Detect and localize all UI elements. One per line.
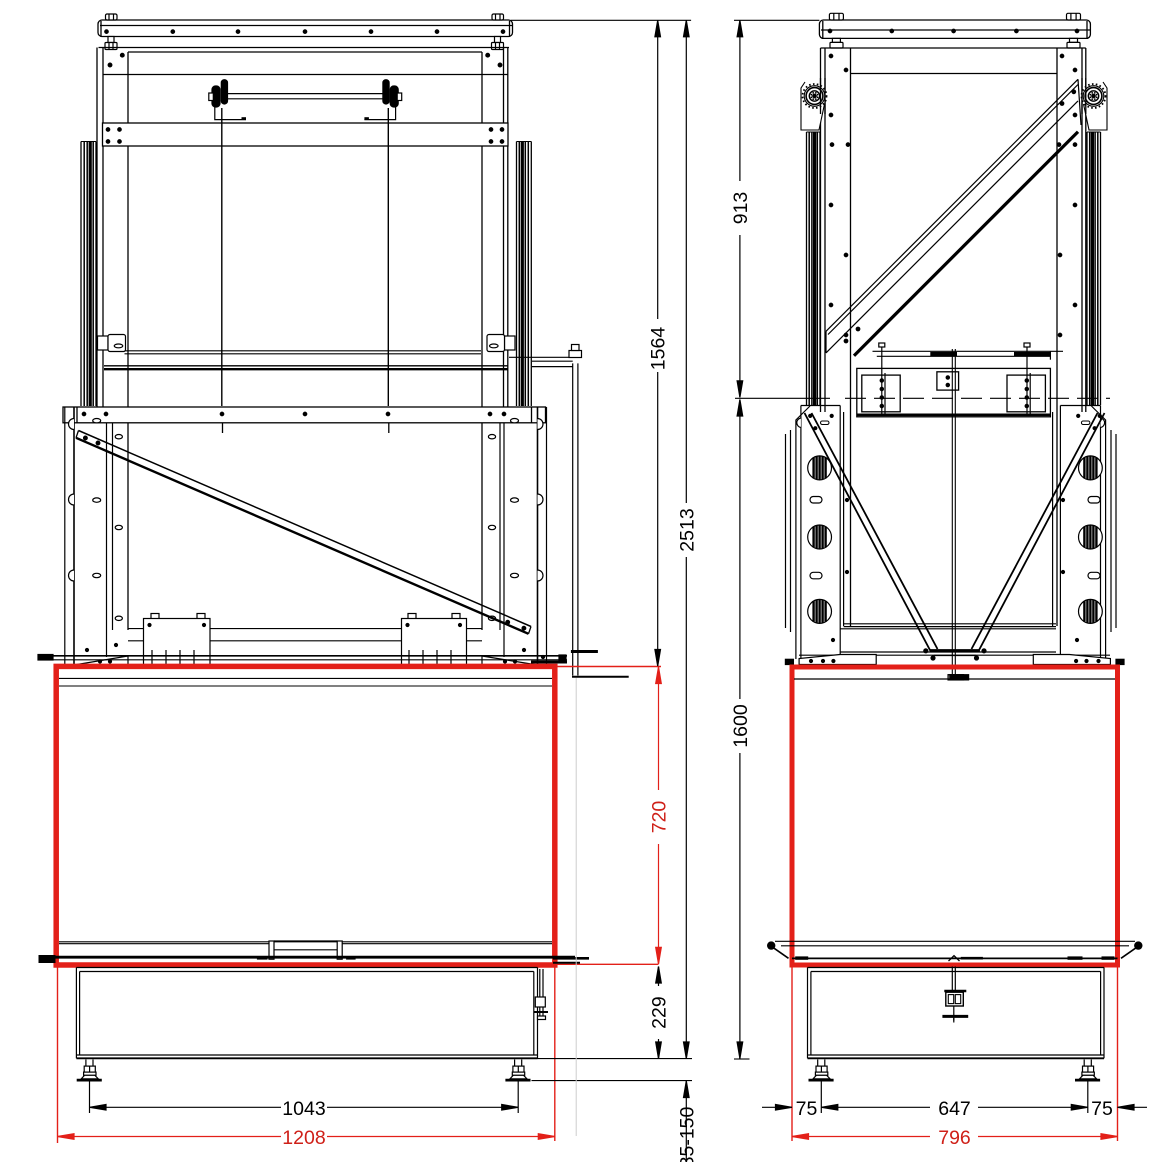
svg-text:1600: 1600 [730, 704, 752, 748]
svg-text:647: 647 [938, 1098, 971, 1120]
svg-text:1043: 1043 [282, 1098, 325, 1120]
svg-text:720: 720 [649, 801, 671, 834]
svg-text:75: 75 [796, 1098, 818, 1120]
svg-text:1564: 1564 [648, 327, 670, 371]
svg-text:796: 796 [938, 1127, 971, 1149]
svg-text:1208: 1208 [282, 1127, 325, 1149]
svg-text:35-150: 35-150 [677, 1106, 699, 1162]
svg-text:913: 913 [730, 192, 752, 225]
svg-text:75: 75 [1091, 1098, 1113, 1120]
svg-text:2513: 2513 [677, 508, 699, 551]
svg-text:229: 229 [649, 996, 671, 1029]
